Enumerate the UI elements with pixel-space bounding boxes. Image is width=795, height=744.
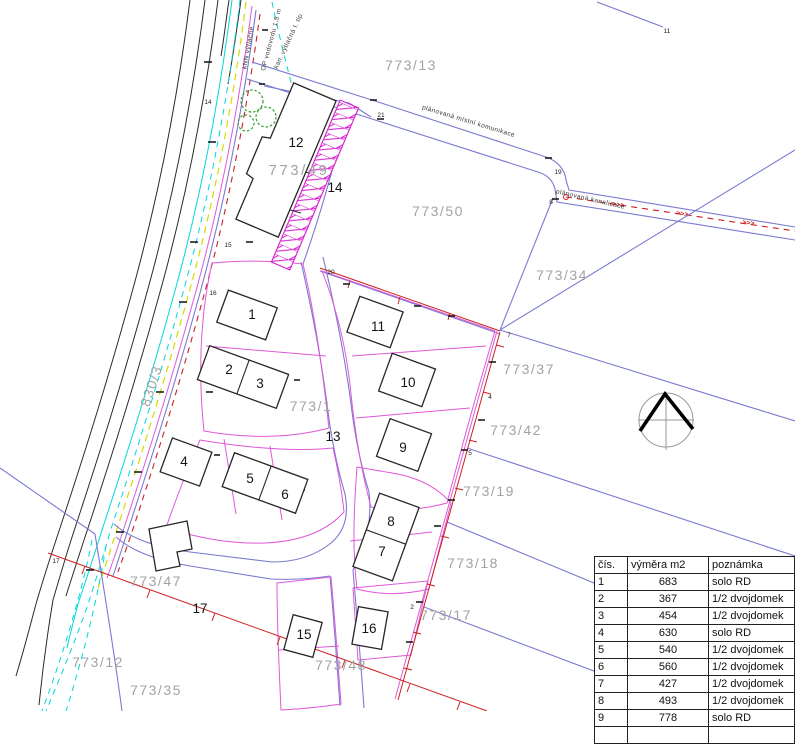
parcel-label-773-42: 773/42	[490, 422, 542, 438]
table-row: 8 493 1/2 dvojdomek	[595, 693, 795, 710]
road-label-komunikace: plánovaná místní komunikace	[421, 104, 516, 139]
table-cell-cis: 2	[595, 591, 628, 608]
table-cell-cis: 9	[595, 710, 628, 727]
site-number-12: 12	[288, 135, 303, 150]
site-number-1: 1	[248, 307, 256, 322]
site-number-4: 4	[180, 454, 188, 469]
parcel-label-773-17: 773/17	[420, 607, 472, 623]
parcel-label-773-50: 773/50	[412, 203, 464, 219]
table-header-poznamka: poznámka	[709, 557, 795, 574]
table-cell-poznamka: solo RD	[709, 710, 795, 727]
point-number-4: 4	[488, 394, 492, 401]
point-number-2: 2	[410, 604, 414, 611]
table-header-row: čís. výměra m2 poznámka	[595, 557, 795, 574]
parcel-label-773-47: 773/47	[130, 573, 182, 589]
site-number-10: 10	[400, 375, 415, 390]
table-cell-poznamka: solo RD	[709, 625, 795, 642]
table-cell-cis: 6	[595, 659, 628, 676]
flow-arrow-icon: >>>	[676, 210, 689, 219]
point-number-15: 15	[224, 242, 232, 249]
point-number-14: 14	[204, 99, 212, 106]
site-number-9: 9	[399, 440, 407, 455]
flow-arrow-icon: >>>	[742, 219, 755, 228]
north-arrow-compass	[638, 392, 694, 450]
table-cell-vymera: 493	[628, 693, 709, 710]
site-number-16: 16	[361, 621, 376, 636]
parcel-label-773-37: 773/37	[503, 361, 555, 377]
site-number-8: 8	[387, 514, 395, 529]
building-5-6	[222, 453, 308, 514]
table-cell-poznamka: 1/2 dvojdomek	[709, 659, 795, 676]
parcel-label-773-12: 773/12	[72, 654, 124, 670]
table-row: 3 454 1/2 dvojdomek	[595, 608, 795, 625]
parcel-label-830-3: 830/3	[137, 363, 165, 408]
point-number-7: 7	[507, 332, 511, 339]
table-cell-poznamka: 1/2 dvojdomek	[709, 676, 795, 693]
site-number-15: 15	[296, 627, 311, 642]
table-cell-cis: 1	[595, 574, 628, 591]
parcel-label-773-49: 773/49	[269, 162, 330, 179]
building-1	[217, 290, 277, 340]
point-number-17: 17	[52, 558, 60, 565]
table-row: 5 540 1/2 dvojdomek	[595, 642, 795, 659]
point-number-20: 20	[327, 269, 335, 276]
point-number-8: 8	[549, 199, 553, 206]
point-number-5: 5	[468, 450, 472, 457]
table-cell-poznamka: 1/2 dvojdomek	[709, 642, 795, 659]
table-cell-poznamka: 1/2 dvojdomek	[709, 608, 795, 625]
table-row: 6 560 1/2 dvojdomek	[595, 659, 795, 676]
utility-bundle	[42, 0, 302, 711]
area-table: čís. výměra m2 poznámka 1 683 solo RD 2 …	[594, 556, 795, 744]
table-cell-vymera: 683	[628, 574, 709, 591]
table-header-vymera: výměra m2	[628, 557, 709, 574]
parcel-label-773-13: 773/13	[385, 57, 437, 73]
table-row: 1 683 solo RD	[595, 574, 795, 591]
site-number-3: 3	[256, 376, 264, 391]
table-row: 2 367 1/2 dvojdomek	[595, 591, 795, 608]
site-number-5: 5	[246, 471, 254, 486]
table-row: 9 778 solo RD	[595, 710, 795, 727]
table-row-partial	[595, 727, 795, 744]
table-cell-poznamka: 1/2 dvojdomek	[709, 591, 795, 608]
site-plan-page: { "map": { "parcel_labels": [ {"id":"773…	[0, 0, 795, 711]
table-cell-cis: 3	[595, 608, 628, 625]
table-cell-cis: 4	[595, 625, 628, 642]
site-number-17: 17	[192, 601, 207, 616]
parcel-label-773-18: 773/18	[447, 555, 499, 571]
table-cell-cis: 7	[595, 676, 628, 693]
site-number-6: 6	[281, 487, 289, 502]
parcel-label-773-19: 773/19	[463, 483, 515, 499]
point-number-16: 16	[209, 290, 217, 297]
table-cell-vymera: 540	[628, 642, 709, 659]
building-7-8	[353, 493, 419, 581]
site-number-7: 7	[378, 544, 386, 559]
table-row: 7 427 1/2 dvojdomek	[595, 676, 795, 693]
table-cell-vymera: 778	[628, 710, 709, 727]
table-cell-poznamka: 1/2 dvojdomek	[709, 693, 795, 710]
table-cell-poznamka: solo RD	[709, 574, 795, 591]
table-cell-cis: 8	[595, 693, 628, 710]
site-number-2: 2	[225, 362, 233, 377]
site-number-14: 14	[327, 180, 343, 195]
table-cell-vymera: 560	[628, 659, 709, 676]
table-cell-cis: 5	[595, 642, 628, 659]
building-2-3	[197, 346, 288, 409]
table-header-cis: čís.	[595, 557, 628, 574]
site-number-13: 13	[325, 429, 340, 444]
parcel-label-773-48: 773/48	[315, 657, 367, 673]
table-cell-vymera: 367	[628, 591, 709, 608]
point-number-19: 19	[554, 169, 562, 176]
parcel-label-773-35: 773/35	[130, 682, 182, 698]
point-number-11: 11	[664, 28, 671, 35]
existing-house	[149, 521, 192, 571]
parcel-label-773-1: 773/1	[290, 398, 333, 414]
table-cell-vymera: 630	[628, 625, 709, 642]
table-cell-vymera: 427	[628, 676, 709, 693]
site-number-11: 11	[371, 319, 385, 334]
tree-symbols	[238, 90, 276, 131]
plot-boundaries	[166, 261, 497, 710]
table-cell-vymera: 454	[628, 608, 709, 625]
table-row: 4 630 solo RD	[595, 625, 795, 642]
point-number-21: 21	[377, 112, 385, 119]
parcel-label-773-34: 773/34	[536, 267, 588, 283]
